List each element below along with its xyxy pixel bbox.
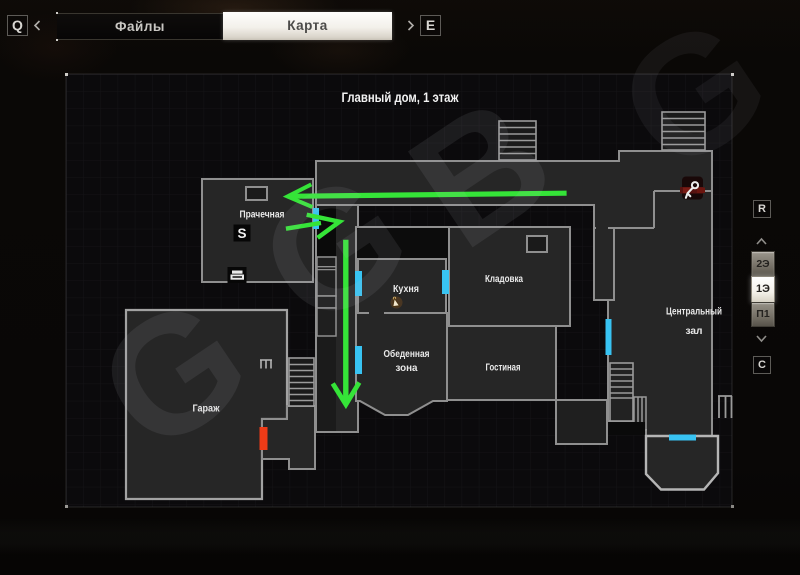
svg-text:Центральный: Центральный xyxy=(666,306,722,318)
svg-text:зона: зона xyxy=(396,362,418,374)
svg-text:Гостиная: Гостиная xyxy=(486,362,521,374)
svg-text:Обеденная: Обеденная xyxy=(384,348,430,360)
svg-text:зал: зал xyxy=(686,325,703,337)
